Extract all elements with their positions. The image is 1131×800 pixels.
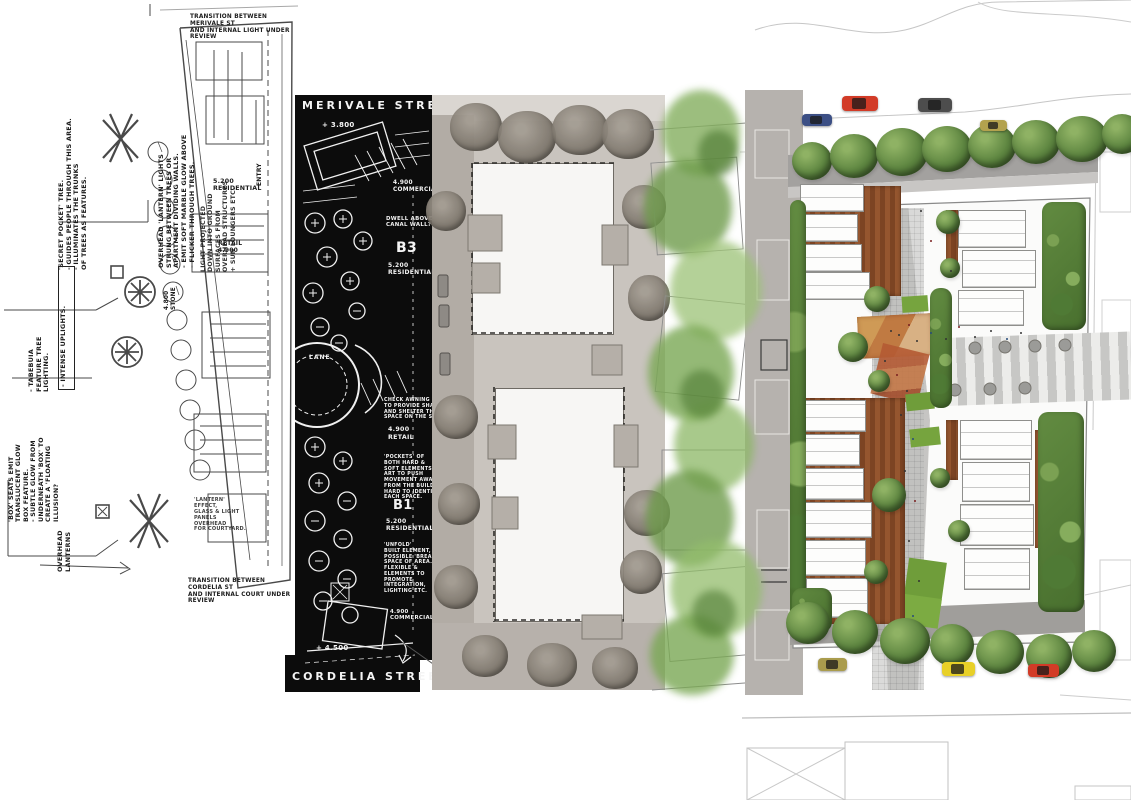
annotation-residential: 5.200 RESIDENTIAL	[213, 178, 265, 193]
street-tree	[930, 624, 974, 666]
townhouse-roof	[958, 210, 1026, 248]
design-process-board: OVERHEAD 'LANTERN' LIGHTS STRUNG BETWEEN…	[0, 0, 1131, 800]
pedestrians	[890, 330, 892, 332]
annotation-box-seats: 'BOX' SEATS EMIT TRANSLUCENT GLOW BOX FE…	[8, 344, 64, 522]
car-grey-top	[918, 98, 952, 112]
car-blue-top	[802, 114, 832, 126]
street-tree	[1012, 120, 1060, 164]
townhouse-roof	[960, 420, 1032, 460]
townhouse-roof	[962, 462, 1030, 502]
sketch-panel: OVERHEAD 'LANTERN' LIGHTS STRUNG BETWEEN…	[0, 0, 300, 625]
street-tree	[830, 134, 878, 178]
annotation-retail: RETAIL 4.900	[218, 240, 258, 254]
townhouse-roof	[800, 502, 872, 538]
label-b1-use: 5.200 RESIDENTIAL	[386, 518, 433, 532]
annotation-overhead-lanterns: OVERHEAD LANTERNS	[57, 476, 77, 572]
street-tree	[792, 142, 832, 180]
hedge-right-lower	[1038, 412, 1084, 612]
street-tree	[922, 126, 972, 172]
label-commercial-bottom: 4.900 COMMERCIAL	[390, 609, 434, 622]
note-dwell-above: DWELL ABOVE CANAL WALL?	[386, 216, 433, 229]
townhouse-roof	[800, 272, 870, 300]
street-tree	[1056, 116, 1108, 162]
annotation-lantern-effect: 'LANTERN' EFFECT, GLASS & LIGHT PANELS O…	[194, 498, 248, 533]
townhouse-roof	[800, 434, 860, 466]
car-yellow-bottom	[942, 662, 975, 676]
annotation-top-note: TRANSITION BETWEEN MERIVALE ST AND INTER…	[190, 14, 302, 41]
townhouse-roof	[960, 504, 1034, 546]
car-red-bottom	[1028, 664, 1059, 677]
car-tan-top	[980, 120, 1007, 131]
courtyard-tree	[930, 468, 950, 488]
lawn-patch	[901, 295, 928, 313]
label-lane: LANE	[309, 354, 331, 361]
courtyard-tree	[864, 560, 888, 584]
lawn-patch	[909, 426, 941, 447]
townhouse-roof	[964, 548, 1030, 590]
courtyard-tree	[936, 210, 960, 234]
street-tree	[786, 602, 830, 644]
courtyard-tree	[838, 332, 868, 362]
car-red-top	[842, 96, 878, 111]
car-tan-bottom	[818, 658, 847, 671]
townhouse-roof	[800, 184, 864, 212]
label-b3: B3	[396, 240, 417, 257]
townhouse-roof	[962, 250, 1036, 288]
annotation-secret-pocket: 'SECRET POCKET' TREE. - GUIDES PEOPLE TH…	[58, 82, 114, 270]
label-b3-use: 5.200 RESIDENTIAL	[388, 262, 435, 276]
label-level-bottom: + 4.500	[316, 644, 349, 652]
street-tree	[1072, 630, 1116, 672]
street-tree	[876, 128, 928, 176]
courtyard-tree	[864, 286, 890, 312]
annotation-bottom-note: TRANSITION BETWEEN CORDELIA ST AND INTER…	[188, 578, 300, 605]
townhouse-roof	[958, 290, 1024, 326]
townhouse-roof	[800, 540, 866, 576]
hedge-center	[930, 288, 952, 408]
street-tree	[832, 610, 878, 654]
courtyard-tree	[948, 520, 970, 542]
courtyard-tree	[940, 258, 960, 278]
townhouse-roof	[800, 214, 858, 242]
street-tree	[880, 618, 930, 664]
street-tree	[976, 630, 1024, 674]
annotation-stone-level: 4.800 STONE	[164, 274, 180, 310]
render-panel	[780, 90, 1131, 705]
collage-panel	[432, 95, 665, 690]
townhouse-roof	[800, 400, 866, 432]
hedge-right-upper	[1042, 202, 1086, 330]
hedge-left-edge	[790, 200, 806, 640]
label-b1: B1	[393, 498, 413, 514]
townhouse-roof	[800, 244, 862, 272]
crossing-planters	[930, 335, 1130, 405]
courtyard-tree	[872, 478, 906, 512]
courtyard-tree	[868, 370, 890, 392]
label-retail-level: 4.900 RETAIL	[388, 426, 414, 441]
label-level-top: + 3.800	[322, 121, 355, 129]
townhouse-roof	[800, 468, 864, 500]
